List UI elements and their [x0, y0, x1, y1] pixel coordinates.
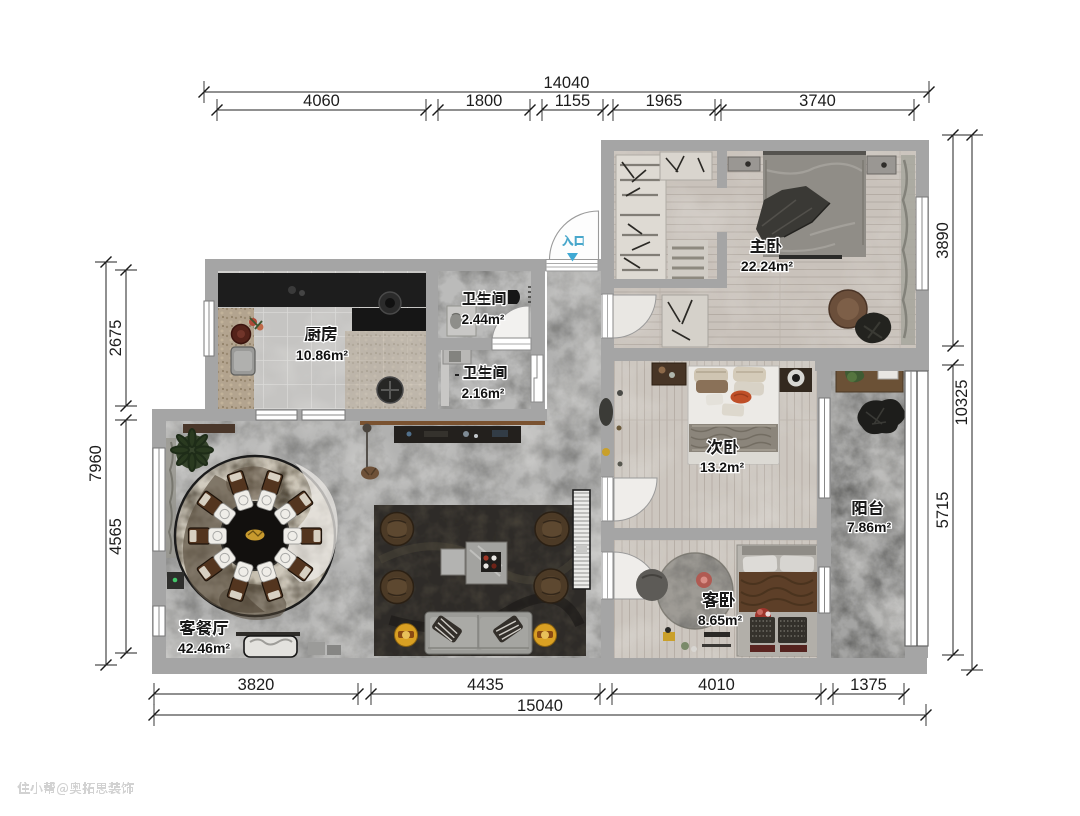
- svg-text:1965: 1965: [646, 92, 683, 110]
- svg-text:1155: 1155: [555, 92, 590, 110]
- svg-text:7960: 7960: [87, 445, 105, 482]
- svg-text:2.44m²: 2.44m²: [462, 312, 505, 327]
- svg-text:4010: 4010: [698, 676, 735, 694]
- svg-text:4060: 4060: [303, 92, 340, 110]
- svg-text:10.86m²: 10.86m²: [296, 347, 348, 363]
- svg-text:2.16m²: 2.16m²: [462, 386, 505, 401]
- svg-text:15040: 15040: [517, 697, 563, 715]
- svg-text:3740: 3740: [799, 92, 836, 110]
- svg-text:14040: 14040: [544, 74, 590, 92]
- svg-text:22.24m²: 22.24m²: [741, 258, 793, 274]
- svg-text:8.65m²: 8.65m²: [698, 612, 743, 628]
- svg-text:42.46m²: 42.46m²: [178, 640, 230, 656]
- svg-text:13.2m²: 13.2m²: [700, 459, 745, 475]
- svg-text:1800: 1800: [466, 92, 503, 110]
- svg-text:4435: 4435: [467, 676, 504, 694]
- svg-text:4565: 4565: [107, 518, 125, 555]
- svg-text:7.86m²: 7.86m²: [847, 519, 892, 535]
- svg-text:3890: 3890: [934, 222, 952, 259]
- svg-text:10325: 10325: [953, 380, 971, 426]
- svg-text:2675: 2675: [107, 320, 125, 357]
- svg-text:3820: 3820: [238, 676, 275, 694]
- svg-text:5715: 5715: [934, 492, 952, 529]
- svg-text:1375: 1375: [850, 676, 887, 694]
